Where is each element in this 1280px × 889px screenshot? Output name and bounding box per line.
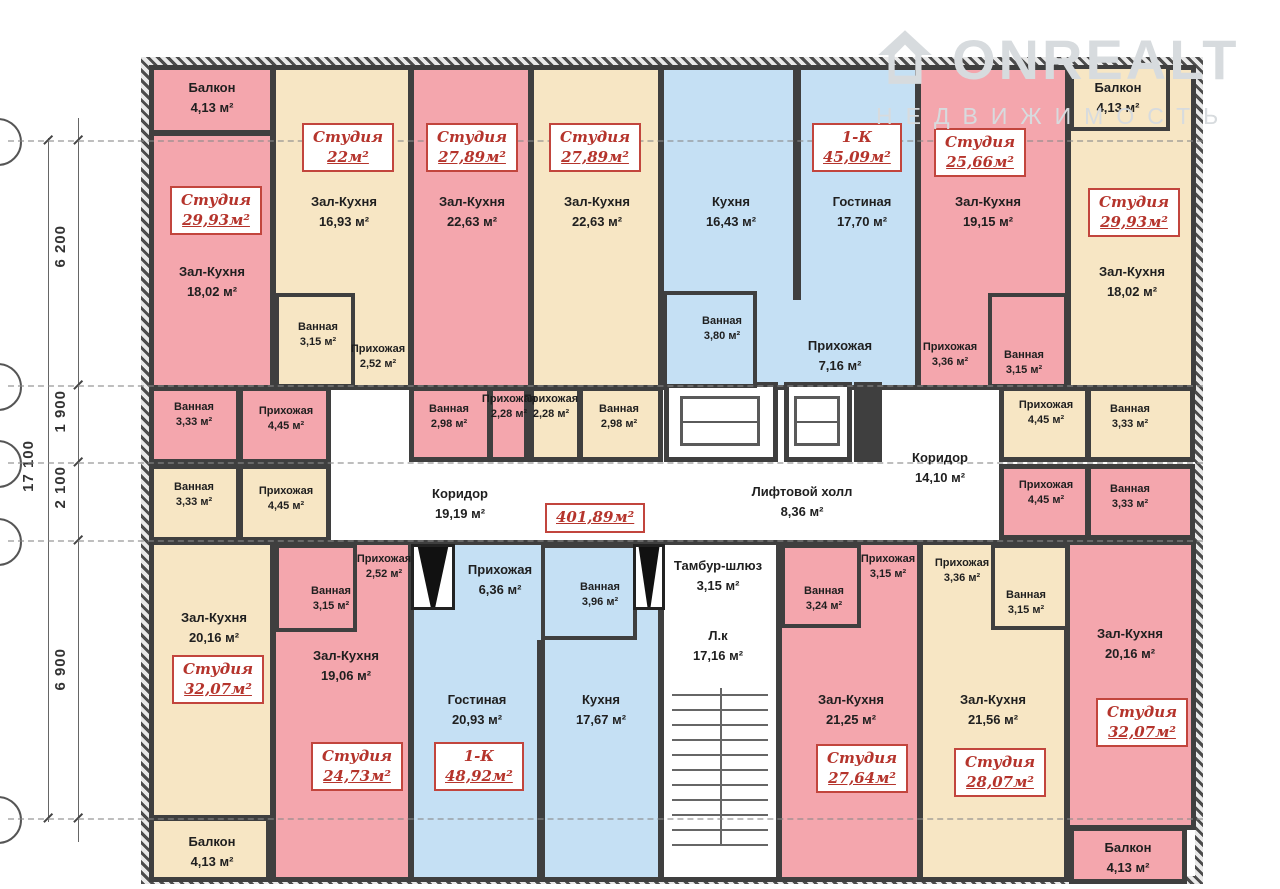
label-a1-entry: Прихожая4,45 м²	[259, 404, 313, 434]
label-a2-hall: Зал-Кухня16,93 м²	[311, 192, 377, 232]
wall-m-b1	[236, 464, 243, 542]
room-b6-main	[1065, 540, 1196, 830]
wall-m-a1	[236, 386, 243, 464]
axis-line	[8, 818, 1203, 820]
unit-tag-b4: Студия27,64м²	[816, 744, 908, 793]
label-a1-balcony: Балкон4,13 м²	[189, 78, 236, 118]
label-a6-bath: Ванная3,15 м²	[1004, 348, 1044, 378]
unit-tag-a1: Студия29,93м²	[170, 186, 262, 235]
label-b3-kitchen: Кухня17,67 м²	[576, 690, 626, 730]
vent-shaft-icon	[411, 544, 455, 610]
label-b5-hall: Зал-Кухня21,56 м²	[960, 690, 1026, 730]
label-b5-bath: Ванная3,15 м²	[1006, 588, 1046, 618]
unit-tag-a6: Студия25,66м²	[934, 128, 1026, 177]
dimension-label-2100: 2 100	[52, 466, 69, 509]
label-b6-hall: Зал-Кухня20,16 м²	[1097, 624, 1163, 664]
label-lift-hall: Лифтовой холл8,36 м²	[752, 482, 853, 522]
unit-tag-b2: Студия24,73м²	[311, 742, 403, 791]
label-a4-hall: Зал-Кухня22,63 м²	[564, 192, 630, 232]
label-b2-entry: Прихожая2,52 м²	[357, 552, 411, 582]
label-b6-balcony: Балкон4,13 м²	[1105, 838, 1152, 878]
label-corridor-right: Коридор14,10 м²	[912, 448, 968, 488]
label-b4-bath: Ванная3,24 м²	[804, 584, 844, 614]
room-a1-main	[149, 131, 275, 390]
axis-bubble	[0, 440, 22, 488]
label-b1-balcony: Балкон4,13 м²	[189, 832, 236, 872]
unit-tag-a3: Студия27,89м²	[426, 123, 518, 172]
logo-brand: ONREALT	[952, 32, 1240, 88]
axis-bubble	[0, 118, 22, 166]
axis-line	[8, 385, 1203, 387]
floor-plan: 6 200 1 900 2 100 6 900 17 100	[0, 0, 1280, 889]
wall-a5-divider	[793, 65, 801, 300]
unit-tag-a2: Студия22м²	[302, 123, 394, 172]
dimension-line-inner	[78, 118, 79, 842]
label-a5-bath: Ванная3,80 м²	[702, 314, 742, 344]
label-b5-entry: Прихожая3,36 м²	[935, 556, 989, 586]
logo: ONREALT НЕДВИЖИМОСТЬ	[872, 24, 1240, 130]
label-b1-bath: Ванная3,33 м²	[174, 480, 214, 510]
axis-line	[8, 540, 1203, 542]
dimension-label-6200: 6 200	[52, 225, 69, 268]
label-a5-living: Гостиная17,70 м²	[833, 192, 892, 232]
wall-m-b6	[1085, 464, 1091, 540]
label-a4-bath: Ванная2,98 м²	[599, 402, 639, 432]
label-b1-hall: Зал-Кухня20,16 м²	[181, 608, 247, 648]
vent-shaft-icon	[633, 544, 665, 610]
unit-tag-b6: Студия32,07м²	[1096, 698, 1188, 747]
label-b1-entry: Прихожая4,45 м²	[259, 484, 313, 514]
wall-b3-divider	[537, 640, 545, 882]
label-b3-bath: Ванная3,96 м²	[580, 580, 620, 610]
label-a7-bath: Ванная3,33 м²	[1110, 402, 1150, 432]
label-a2-entry: Прихожая2,52 м²	[351, 342, 405, 372]
label-corridor-left: Коридор19,19 м²	[432, 484, 488, 524]
label-a2-bath: Ванная3,15 м²	[298, 320, 338, 350]
label-a7-hall: Зал-Кухня18,02 м²	[1099, 262, 1165, 302]
label-b2-hall: Зал-Кухня19,06 м²	[313, 646, 379, 686]
label-b2-bath: Ванная3,15 м²	[311, 584, 351, 614]
service-shaft	[854, 382, 882, 462]
label-a1-hall: Зал-Кухня18,02 м²	[179, 262, 245, 302]
axis-bubble	[0, 796, 22, 844]
dimension-label-6900: 6 900	[52, 648, 69, 691]
logo-subtitle: НЕДВИЖИМОСТЬ	[876, 103, 1240, 130]
elevator-car-icon-2	[794, 396, 840, 446]
label-a3-hall: Зал-Кухня22,63 м²	[439, 192, 505, 232]
unit-tag-a7: Студия29,93м²	[1088, 188, 1180, 237]
label-a5-kitchen: Кухня16,43 м²	[706, 192, 756, 232]
unit-tag-b5: Студия28,07м²	[954, 748, 1046, 797]
label-b3-entry: Прихожая6,36 м²	[468, 560, 532, 600]
label-a3-bath: Ванная2,98 м²	[429, 402, 469, 432]
label-b6-entry: Прихожая4,45 м²	[1019, 478, 1073, 508]
label-stairs: Л.к17,16 м²	[693, 626, 743, 666]
dimension-label-1900: 1 900	[52, 390, 69, 433]
label-tambour: Тамбур-шлюз3,15 м²	[674, 556, 762, 596]
unit-tag-a5: 1-К45,09м²	[812, 123, 902, 172]
house-icon	[872, 24, 938, 95]
total-area-tag: 401,89м²	[545, 503, 645, 533]
label-a6-hall: Зал-Кухня19,15 м²	[955, 192, 1021, 232]
label-b4-hall: Зал-Кухня21,25 м²	[818, 690, 884, 730]
label-a5-entry: Прихожая7,16 м²	[808, 336, 872, 376]
elevator-car-icon-1	[680, 396, 760, 446]
stairs-icon	[672, 688, 768, 846]
unit-tag-b1: Студия32,07м²	[172, 655, 264, 704]
axis-bubble	[0, 363, 22, 411]
label-a7-entry: Прихожая4,45 м²	[1019, 398, 1073, 428]
unit-tag-a4: Студия27,89м²	[549, 123, 641, 172]
unit-tag-b3: 1-К48,92м²	[434, 742, 524, 791]
label-a1-bath: Ванная3,33 м²	[174, 400, 214, 430]
label-a6-entry: Прихожая3,36 м²	[923, 340, 977, 370]
wall-m-a7	[1085, 386, 1091, 462]
axis-line	[8, 462, 1203, 464]
label-b6-bath: Ванная3,33 м²	[1110, 482, 1150, 512]
axis-bubble	[0, 518, 22, 566]
label-b3-living: Гостиная20,93 м²	[448, 690, 507, 730]
label-b4-entry: Прихожая3,15 м²	[861, 552, 915, 582]
dimension-line-outer	[48, 138, 49, 822]
dimension-label-17100: 17 100	[20, 440, 37, 492]
label-a4-entry: Прихожая2,28 м²	[524, 392, 578, 422]
